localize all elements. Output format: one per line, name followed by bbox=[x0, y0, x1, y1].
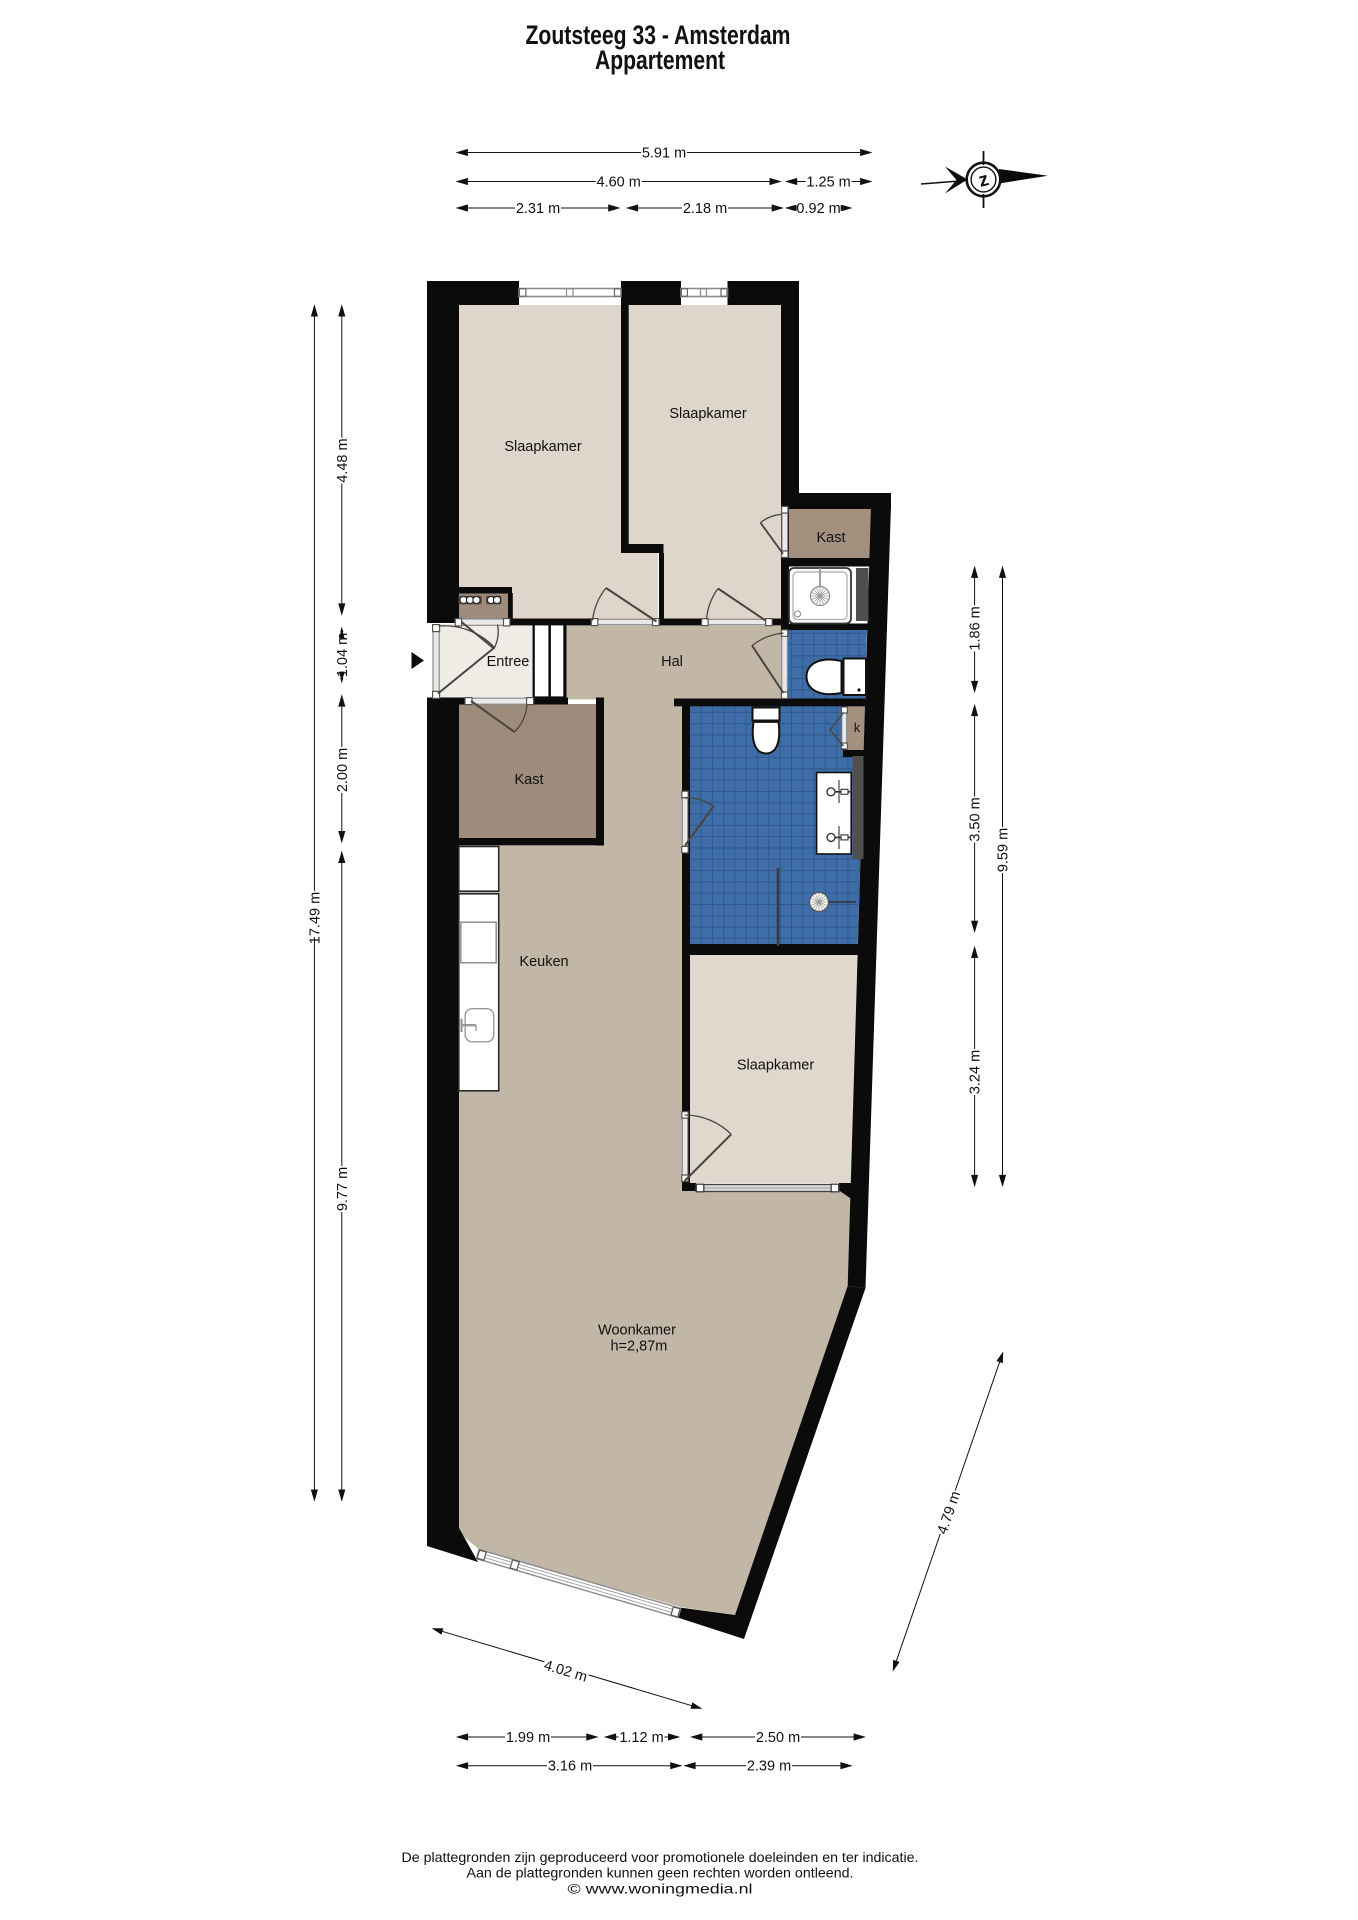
svg-text:1.04 m: 1.04 m bbox=[335, 633, 351, 677]
svg-text:2.50 m: 2.50 m bbox=[756, 1730, 800, 1746]
svg-text:Hal: Hal bbox=[661, 654, 683, 670]
svg-text:4.48 m: 4.48 m bbox=[335, 438, 351, 482]
svg-text:9.77 m: 9.77 m bbox=[335, 1167, 351, 1211]
svg-text:Keuken: Keuken bbox=[519, 954, 568, 970]
svg-text:k: k bbox=[854, 721, 861, 735]
svg-text:17.49 m: 17.49 m bbox=[307, 892, 323, 944]
svg-text:1.25 m: 1.25 m bbox=[806, 175, 850, 191]
svg-text:3.24 m: 3.24 m bbox=[968, 1050, 984, 1094]
svg-text:1.99 m: 1.99 m bbox=[506, 1730, 550, 1746]
svg-text:h=2,87m: h=2,87m bbox=[610, 1339, 667, 1355]
svg-text:3.16 m: 3.16 m bbox=[548, 1759, 592, 1775]
svg-text:2.31 m: 2.31 m bbox=[516, 201, 560, 217]
svg-text:Appartement: Appartement bbox=[595, 45, 725, 75]
svg-text:2.39 m: 2.39 m bbox=[747, 1759, 791, 1775]
svg-text:Aan de plattegronden kunnen ge: Aan de plattegronden kunnen geen rechten… bbox=[467, 1865, 854, 1881]
svg-text:2.00 m: 2.00 m bbox=[335, 748, 351, 792]
svg-text:2.18 m: 2.18 m bbox=[683, 201, 727, 217]
svg-text:Woonkamer: Woonkamer bbox=[598, 1323, 676, 1339]
svg-text:5.91 m: 5.91 m bbox=[642, 146, 686, 162]
svg-text:Kast: Kast bbox=[816, 530, 845, 546]
svg-text:Slaapkamer: Slaapkamer bbox=[504, 439, 582, 455]
svg-text:Slaapkamer: Slaapkamer bbox=[737, 1058, 815, 1074]
svg-text:1.12 m: 1.12 m bbox=[619, 1730, 663, 1746]
svg-text:Entree: Entree bbox=[487, 654, 530, 670]
svg-text:4.60 m: 4.60 m bbox=[597, 175, 641, 191]
svg-text:9.59 m: 9.59 m bbox=[996, 828, 1012, 872]
svg-text:© www.woningmedia.nl: © www.woningmedia.nl bbox=[568, 1881, 753, 1897]
svg-text:Slaapkamer: Slaapkamer bbox=[669, 406, 747, 422]
svg-text:1.86 m: 1.86 m bbox=[968, 606, 984, 650]
svg-text:De plattegronden zijn geproduc: De plattegronden zijn geproduceerd voor … bbox=[402, 1849, 919, 1865]
svg-text:Kast: Kast bbox=[514, 772, 543, 788]
svg-text:0.92 m: 0.92 m bbox=[796, 201, 840, 217]
svg-text:3.50 m: 3.50 m bbox=[968, 797, 984, 841]
